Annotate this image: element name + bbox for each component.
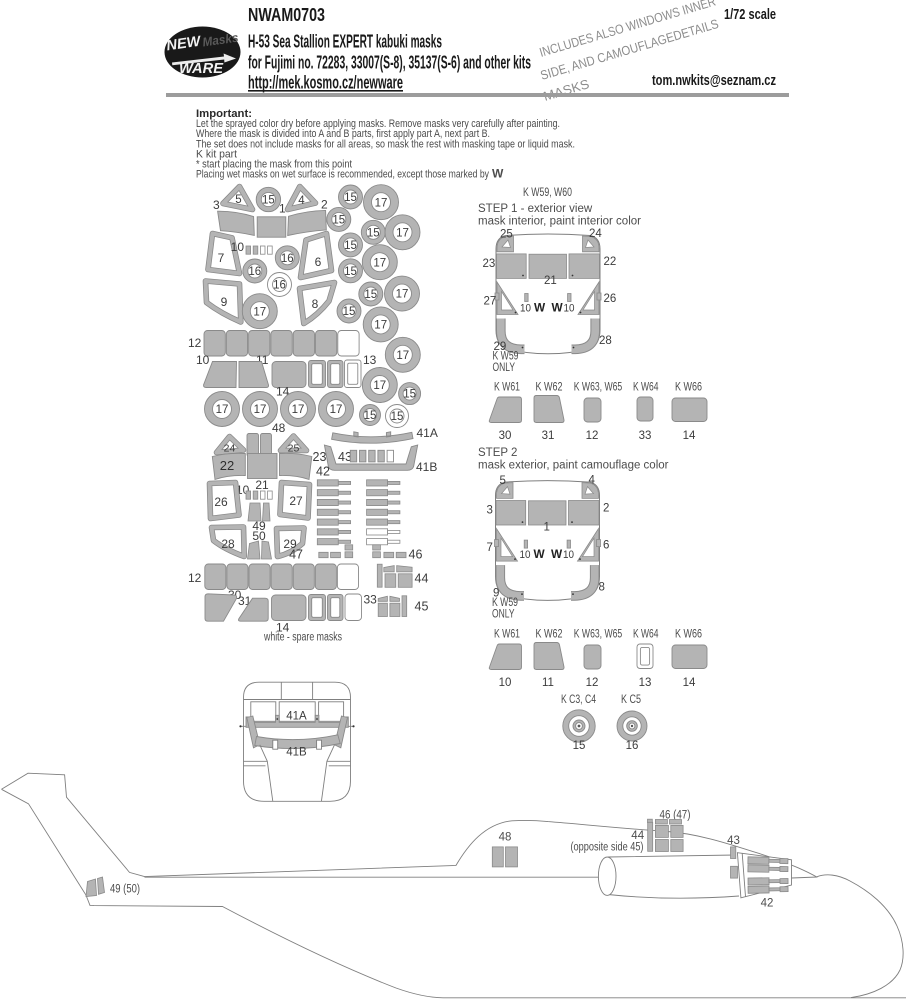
svg-text:H-53 Sea Stallion EXPERT kabuk: H-53 Sea Stallion EXPERT kabuki masks [248,32,442,52]
svg-text:17: 17 [375,197,388,209]
svg-text:15: 15 [391,411,404,423]
svg-text:2: 2 [603,503,609,515]
svg-text:15: 15 [344,266,357,278]
svg-text:K W59: K W59 [492,597,518,609]
svg-text:41A: 41A [417,426,438,440]
svg-text:10: 10 [520,303,531,315]
svg-text:14: 14 [683,430,696,442]
svg-text:27: 27 [289,494,303,508]
svg-text:1/72 scale: 1/72 scale [724,6,776,23]
svg-text:15: 15 [573,740,586,752]
svg-text:12: 12 [188,336,202,350]
svg-text:17: 17 [373,257,386,269]
svg-text:17: 17 [396,289,409,301]
svg-text:43: 43 [727,835,740,847]
svg-text:ONLY: ONLY [492,609,515,621]
svg-text:44: 44 [415,572,429,586]
svg-text:K W64: K W64 [633,629,659,641]
svg-text:5: 5 [500,475,506,487]
svg-text:WARE: WARE [179,61,224,77]
svg-text:W: W [551,547,563,561]
svg-text:21: 21 [544,275,557,287]
svg-text:12: 12 [188,571,202,585]
svg-text:17: 17 [330,404,343,416]
svg-text:15: 15 [344,240,357,252]
svg-text:14: 14 [683,677,696,689]
svg-text:42: 42 [761,898,774,910]
svg-text:for Fujimi no. 72283, 33007(S-: for Fujimi no. 72283, 33007(S-8), 35137(… [248,53,531,73]
svg-text:44: 44 [631,830,644,842]
svg-text:17: 17 [373,380,386,392]
svg-text:4: 4 [298,195,305,207]
svg-text:25: 25 [500,229,513,241]
svg-text:10: 10 [564,303,575,315]
svg-text:41B: 41B [416,460,437,474]
svg-text:6: 6 [315,255,322,269]
svg-text:33: 33 [364,593,378,607]
svg-text:46: 46 [409,548,423,562]
svg-text:NWAM0703: NWAM0703 [248,5,325,25]
svg-text:25: 25 [288,443,300,455]
svg-text:10: 10 [499,677,512,689]
svg-text:STEP 1 - exterior view: STEP 1 - exterior view [478,203,593,215]
svg-text:15: 15 [262,195,275,207]
svg-text:white - spare masks: white - spare masks [263,632,342,644]
svg-text:12: 12 [586,677,599,689]
svg-text:9: 9 [221,295,228,309]
svg-text:W: W [534,547,546,561]
svg-text:31: 31 [542,430,555,442]
svg-text:15: 15 [364,410,377,422]
svg-text:10: 10 [520,549,531,561]
svg-text:tom.nwkits@seznam.cz: tom.nwkits@seznam.cz [652,72,776,89]
svg-text:15: 15 [344,192,357,204]
svg-text:12: 12 [586,430,599,442]
svg-text:ONLY: ONLY [493,362,516,374]
svg-text:47: 47 [289,548,303,562]
svg-text:15: 15 [332,215,345,227]
svg-text:49 (50): 49 (50) [110,884,140,896]
svg-text:10: 10 [196,353,210,367]
svg-text:K W59, W60: K W59, W60 [523,187,572,199]
svg-text:17: 17 [253,306,266,318]
svg-text:6: 6 [603,540,609,552]
svg-text:48: 48 [272,421,286,435]
svg-text:17: 17 [396,350,409,362]
svg-text:K W63, W65: K W63, W65 [574,382,623,394]
svg-text:11: 11 [542,677,554,689]
svg-text:K W62: K W62 [536,629,563,641]
svg-text:23: 23 [483,258,496,270]
svg-text:16: 16 [248,266,261,278]
svg-text:41B: 41B [286,747,307,759]
svg-text:mask exterior, paint camouflag: mask exterior, paint camouflage color [478,460,669,472]
svg-text:STEP 2: STEP 2 [478,447,517,459]
svg-text:26: 26 [604,293,617,305]
svg-text:22: 22 [220,458,234,473]
svg-text:7: 7 [487,542,493,554]
svg-text:The set does not include masks: The set does not include masks for all a… [196,138,575,150]
svg-text:K C5: K C5 [621,694,641,706]
svg-text:17: 17 [254,404,267,416]
svg-text:10: 10 [563,549,574,561]
svg-text:24: 24 [589,228,602,240]
svg-text:13: 13 [363,353,377,367]
svg-text:15: 15 [403,389,416,401]
svg-text:16: 16 [281,253,294,265]
svg-text:K W59: K W59 [493,351,519,363]
svg-text:K W63, W65: K W63, W65 [574,629,623,641]
svg-text:K C3, C4: K C3, C4 [561,694,596,706]
svg-text:4: 4 [589,475,596,487]
svg-text:2: 2 [321,198,328,212]
svg-text:17: 17 [292,404,305,416]
svg-text:Placing wet masks on wet surfa: Placing wet masks on wet surface is reco… [196,168,489,180]
svg-text:24: 24 [224,443,236,455]
svg-text:K W66: K W66 [675,629,702,641]
svg-text:1: 1 [544,521,550,533]
svg-text:17: 17 [216,404,229,416]
svg-text:K W66: K W66 [675,382,702,394]
svg-text:K W61: K W61 [494,382,520,394]
svg-text:7: 7 [218,251,225,265]
svg-text:28: 28 [599,335,612,347]
svg-text:13: 13 [639,677,652,689]
svg-text:10: 10 [231,240,245,254]
svg-text:48: 48 [499,832,512,844]
svg-text:17: 17 [374,320,387,332]
svg-text:15: 15 [364,289,377,301]
svg-text:26: 26 [214,495,228,509]
svg-text:3: 3 [487,505,493,517]
svg-text:15: 15 [343,306,356,318]
svg-text:3: 3 [213,198,220,212]
svg-text:http://mek.kosmo.cz/newware: http://mek.kosmo.cz/newware [248,73,403,93]
svg-text:27: 27 [484,296,497,308]
svg-text:K W62: K W62 [536,382,563,394]
svg-text:(opposite side 45): (opposite side 45) [571,842,644,854]
svg-text:1: 1 [279,202,286,216]
svg-text:8: 8 [312,297,319,311]
svg-text:30: 30 [499,430,512,442]
svg-text:42: 42 [316,465,330,479]
svg-text:16: 16 [626,740,639,752]
svg-text:15: 15 [367,227,380,239]
svg-text:W: W [552,301,564,315]
svg-text:16: 16 [273,280,286,292]
svg-text:mask interior, paint interior: mask interior, paint interior color [478,216,641,228]
svg-text:21: 21 [255,478,269,492]
svg-text:28: 28 [221,537,235,551]
svg-text:23: 23 [313,450,327,464]
svg-text:17: 17 [396,227,409,239]
svg-text:33: 33 [639,430,652,442]
svg-text:W: W [492,166,504,180]
svg-text:8: 8 [599,582,605,594]
svg-text:W: W [534,301,546,315]
svg-text:22: 22 [604,256,617,268]
svg-text:K W61: K W61 [494,629,520,641]
svg-text:K W64: K W64 [633,382,659,394]
svg-text:41A: 41A [286,711,307,723]
svg-text:5: 5 [235,194,241,206]
svg-text:45: 45 [415,600,429,614]
